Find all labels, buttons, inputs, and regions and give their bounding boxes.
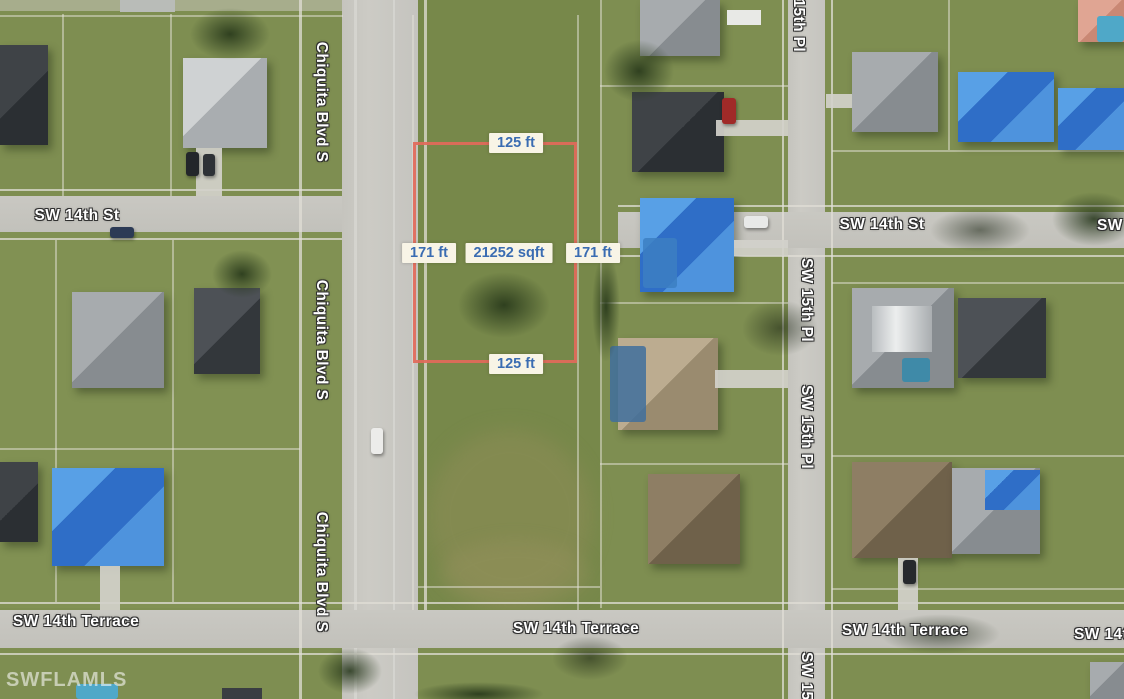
street-label-chiquita-mid: Chiquita Blvd S bbox=[312, 280, 330, 401]
sidewalk bbox=[299, 0, 302, 699]
street-label-sw-14th-terrace-east: SW 14th Terrace bbox=[842, 622, 968, 640]
lot-line bbox=[62, 14, 64, 196]
street-label-sw-14th-st-west: SW 14th St bbox=[35, 207, 120, 225]
house bbox=[958, 298, 1046, 378]
house-blue-tarp bbox=[52, 468, 164, 566]
tree-canopy bbox=[604, 40, 674, 102]
blue-tarp-patch bbox=[985, 470, 1040, 510]
truck bbox=[722, 98, 736, 124]
street-label-sw-14th-terrace-center: SW 14th Terrace bbox=[513, 620, 639, 638]
tree-shadow bbox=[930, 208, 1030, 252]
house bbox=[852, 52, 938, 132]
roof-panels bbox=[872, 306, 932, 352]
small-structure bbox=[727, 10, 761, 25]
driveway bbox=[100, 566, 120, 610]
lot-line bbox=[832, 150, 1124, 152]
lot-line bbox=[170, 14, 172, 196]
parcel-dim-right: 171 ft bbox=[566, 243, 620, 263]
survey-line bbox=[418, 586, 600, 588]
shed bbox=[0, 462, 38, 542]
sidewalk bbox=[0, 602, 1124, 604]
pool-cage bbox=[643, 238, 677, 288]
parcel-dim-left: 171 ft bbox=[402, 243, 456, 263]
car bbox=[744, 216, 768, 228]
street-label-chiquita-bottom: Chiquita Blvd S bbox=[312, 512, 330, 633]
dry-grass-patch bbox=[428, 430, 592, 602]
street-label-sw-15th-pl-clipped-top: SW 15th Pl bbox=[789, 0, 807, 52]
street-label-sw-15th-pl-clipped-bottom: SW 15th Pl bbox=[797, 652, 815, 699]
lot-line bbox=[832, 455, 1124, 457]
house-blue-tarp bbox=[958, 72, 1054, 142]
parcel-dim-top: 125 ft bbox=[489, 133, 543, 153]
house bbox=[1090, 662, 1124, 699]
house bbox=[194, 288, 260, 374]
lot-line bbox=[0, 448, 300, 450]
road-stripe bbox=[354, 0, 357, 699]
lot-line bbox=[832, 282, 1124, 284]
house bbox=[0, 45, 48, 145]
aerial-map: 125 ft 171 ft 21252 sqft 171 ft 125 ft S… bbox=[0, 0, 1124, 699]
lot-line bbox=[832, 588, 1124, 590]
small-structure bbox=[120, 0, 175, 12]
parcel-dim-bottom: 125 ft bbox=[489, 354, 543, 374]
house bbox=[632, 92, 724, 172]
sidewalk bbox=[0, 238, 342, 240]
driveway bbox=[715, 370, 788, 388]
street-label-sw-14th-terrace-west: SW 14th Terrace bbox=[13, 613, 139, 631]
driveway bbox=[734, 240, 788, 256]
tree-canopy bbox=[212, 250, 272, 298]
survey-line bbox=[577, 15, 579, 610]
driveway bbox=[826, 94, 852, 108]
lot-line bbox=[172, 240, 174, 602]
street-label-chiquita-top: Chiquita Blvd S bbox=[312, 42, 330, 163]
parcel-area-label: 21252 sqft bbox=[466, 243, 553, 263]
tree-shadow bbox=[552, 636, 628, 680]
lot-line bbox=[0, 15, 343, 17]
small-structure bbox=[222, 688, 262, 699]
pool bbox=[902, 358, 930, 382]
street-label-sw-14th-terrace-clipped: SW 14th Terrace bbox=[1074, 626, 1124, 644]
street-label-sw-15th-pl-1: SW 15th Pl bbox=[797, 258, 815, 342]
house-blue-tarp bbox=[1058, 88, 1124, 150]
road-stripe bbox=[393, 0, 395, 699]
dry-grass-patch bbox=[440, 540, 590, 610]
car bbox=[903, 560, 916, 584]
car bbox=[203, 154, 215, 176]
street-label-sw-15th-pl-2: SW 15th Pl bbox=[797, 385, 815, 469]
house bbox=[648, 474, 740, 564]
tree-canopy bbox=[414, 682, 544, 699]
street-label-sw-14th-st-east: SW 14th St bbox=[840, 216, 925, 234]
watermark-swflamls: SWFLAMLS bbox=[6, 669, 127, 692]
house bbox=[852, 462, 952, 558]
car bbox=[110, 227, 134, 238]
house bbox=[72, 292, 164, 388]
tree-canopy bbox=[318, 648, 382, 694]
hedge bbox=[592, 252, 620, 362]
pool bbox=[1097, 16, 1124, 42]
tree-canopy bbox=[190, 8, 270, 60]
car bbox=[186, 152, 199, 176]
street-label-sw-14th-st-clipped: SW 14th St bbox=[1097, 217, 1124, 235]
lot-line bbox=[948, 0, 950, 150]
house bbox=[183, 58, 267, 148]
lot-line bbox=[600, 463, 788, 465]
car bbox=[371, 428, 383, 454]
